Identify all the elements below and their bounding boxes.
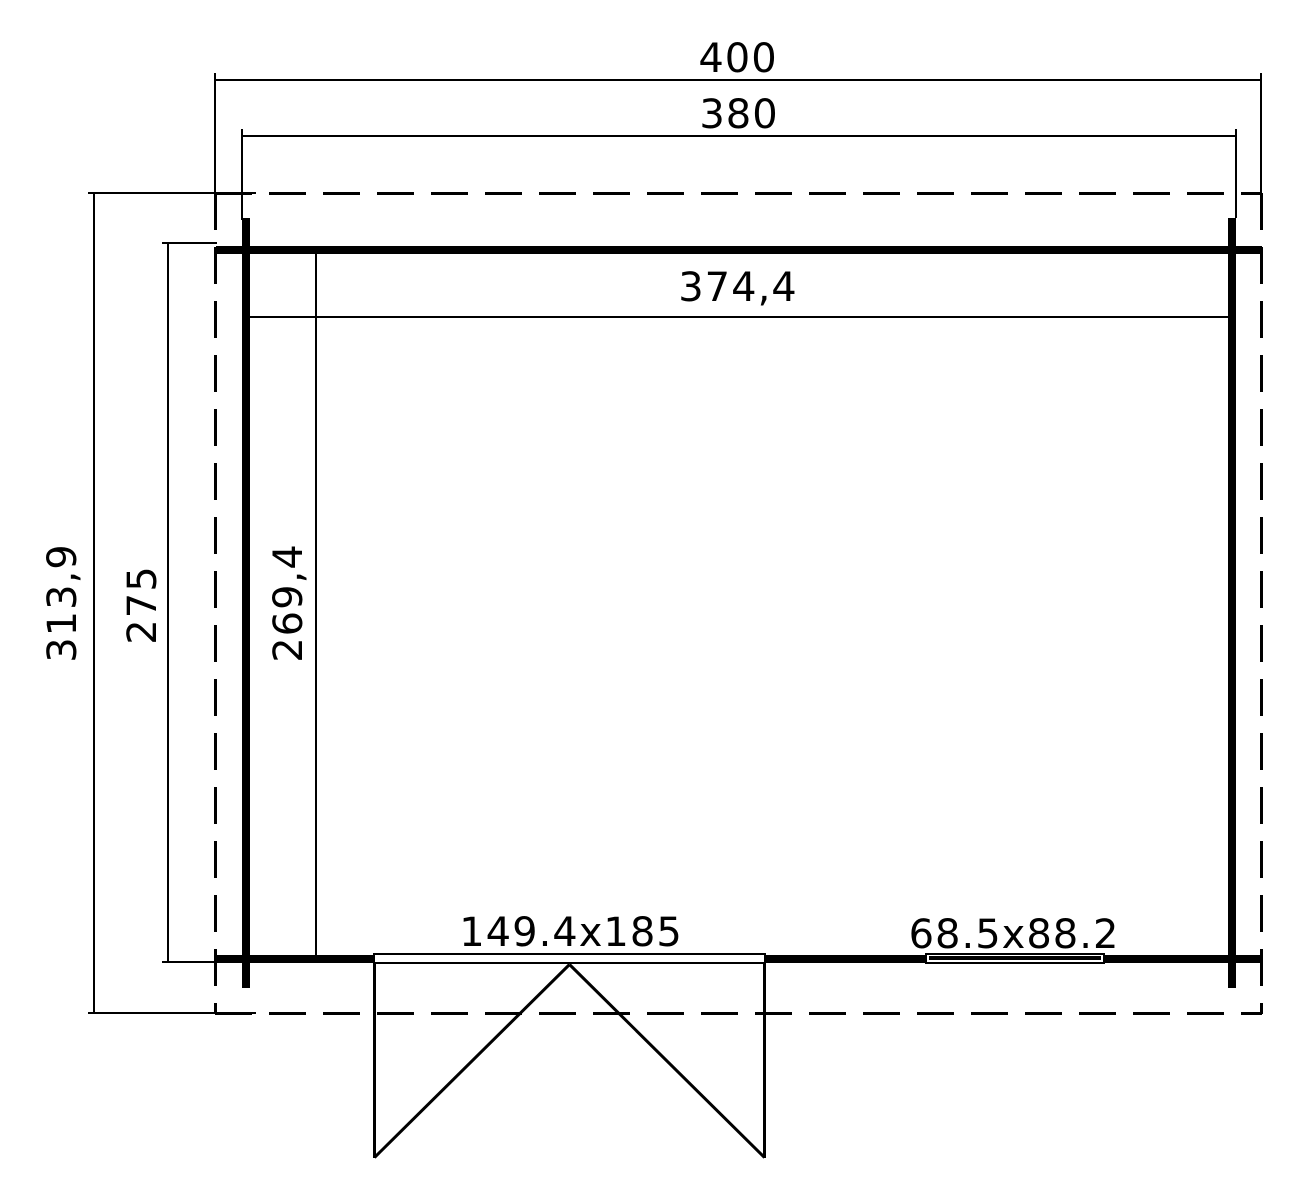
door-size-label: 149.4x185 [421,913,721,953]
door-swing-left-line [375,965,570,1158]
floor-plan-drawing: 400 380 374,4 313,9 275 269,4 149.4x185 … [0,0,1302,1200]
door-swing-right-line [570,965,765,1158]
window-size-label: 68.5x88.2 [864,915,1164,955]
door-swing-lines [0,0,1302,1200]
